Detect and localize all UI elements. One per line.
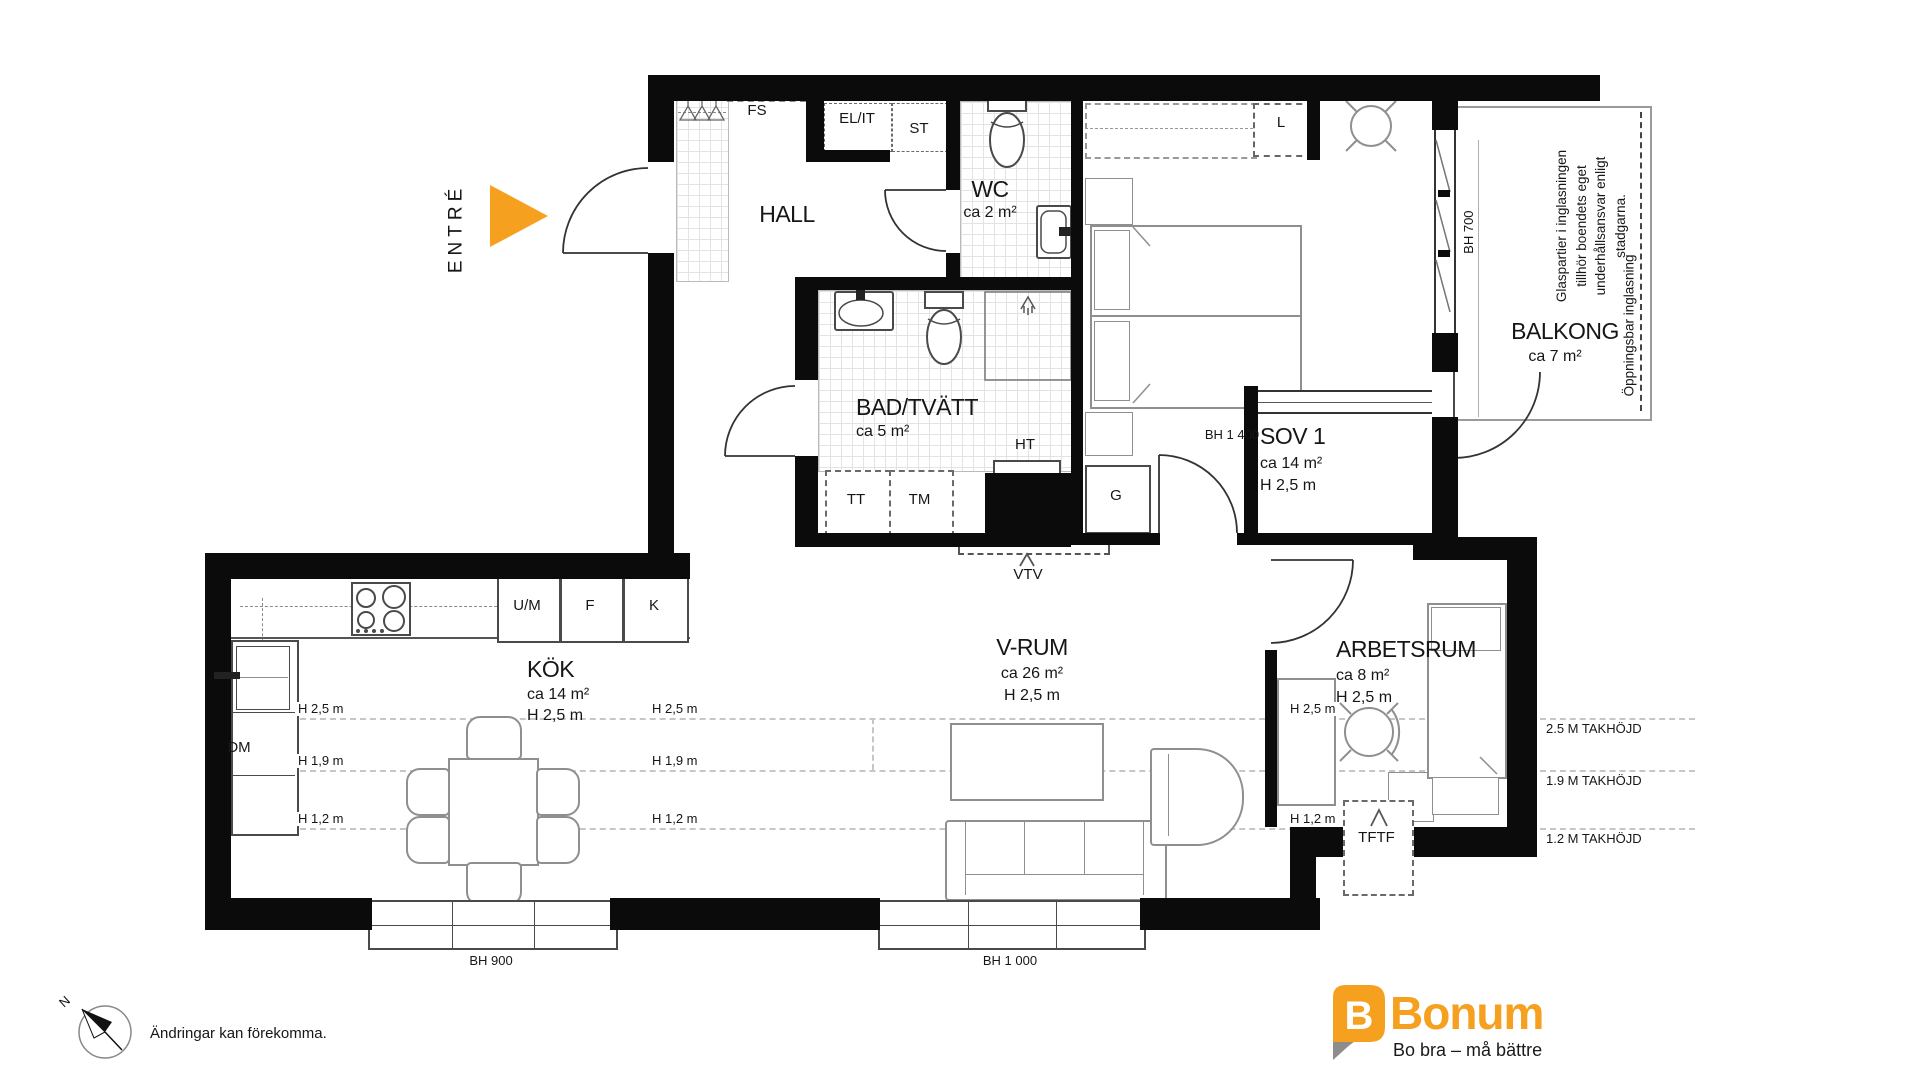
room-label-bad: BAD/TVÄTT (856, 395, 978, 420)
wall (648, 75, 674, 162)
wall (806, 101, 824, 157)
label-tm: TM (889, 492, 950, 509)
wall (795, 277, 1071, 290)
hanger-icons (680, 101, 724, 120)
wall (806, 150, 890, 162)
compass-n-label: N (56, 993, 73, 1010)
room-label-kok: KÖK (527, 657, 574, 682)
ceiling-legend-12: 1.2 M TAKHÖJD (1544, 832, 1644, 846)
brand-tagline: Bo bra – må bättre (1393, 1040, 1542, 1061)
wall (610, 898, 880, 930)
wall (1432, 101, 1458, 130)
room-area-wc: ca 2 m² (952, 204, 1028, 222)
entry-arrow-icon (490, 185, 548, 247)
wall (648, 75, 1600, 101)
toilet-icon (925, 292, 963, 364)
room-label-hall: HALL (727, 202, 847, 227)
label-bh1400: BH 1 400 (1186, 428, 1278, 442)
wall (1290, 827, 1316, 898)
room-label-arbetsrum: ARBETSRUM (1336, 637, 1476, 662)
label-ht: HT (1003, 437, 1047, 454)
room-height-vrum: H 2,5 m (972, 687, 1092, 705)
label-l: L (1253, 115, 1309, 132)
wall (795, 290, 818, 380)
wall (1410, 827, 1537, 857)
floor-plan-canvas: N B ENTRÉ HALL WC ca 2 m² BAD (0, 0, 1920, 1080)
stove-icon (352, 583, 410, 635)
label-tt: TT (825, 492, 887, 509)
label-vtv: VTV (998, 567, 1058, 584)
bonum-logo-letter: B (1345, 994, 1374, 1038)
wall (795, 533, 987, 547)
wall (1083, 533, 1160, 545)
wall (1140, 898, 1320, 930)
height-label: H 1,2 m (650, 812, 700, 826)
label-bh900: BH 900 (431, 954, 551, 968)
room-label-wc: WC (958, 177, 1022, 202)
room-area-vrum: ca 26 m² (972, 665, 1092, 683)
height-label: H 1,9 m (296, 754, 346, 768)
wall (1244, 386, 1258, 545)
compass-icon: N (56, 993, 131, 1058)
room-area-sov1: ca 14 m² (1260, 455, 1322, 473)
room-area-kok: ca 14 m² (527, 686, 589, 704)
entry-label: ENTRÉ (447, 168, 468, 288)
wall (1432, 333, 1458, 372)
room-height-sov1: H 2,5 m (1260, 477, 1316, 495)
wall (1507, 560, 1537, 827)
wall (648, 253, 674, 579)
height-label: H 1,9 m (650, 754, 700, 768)
toilet-icon (988, 95, 1026, 167)
vtv-caret-icon (1020, 554, 1034, 566)
height-label: H 2,5 m (1288, 702, 1338, 716)
label-um: U/M (497, 598, 557, 615)
room-height-kok: H 2,5 m (527, 707, 583, 725)
sink-icon (1037, 206, 1072, 258)
window-mullion (1438, 250, 1450, 257)
chair-icon (1346, 101, 1396, 151)
glazing-note-line: Glaspartier i inglasningen (1552, 116, 1572, 336)
room-area-balkong: ca 7 m² (1500, 348, 1610, 366)
label-bh1000: BH 1 000 (948, 954, 1072, 968)
ventilation-shaft (985, 473, 1071, 547)
label-st: ST (893, 121, 945, 138)
window-bh1000 (878, 900, 1146, 950)
label-f: F (560, 598, 620, 615)
shower-area (985, 292, 1071, 380)
sink-icon (835, 288, 893, 330)
room-height-arbetsrum: H 2,5 m (1336, 689, 1392, 707)
height-label: H 1,2 m (1288, 812, 1338, 826)
kitchen-tap-icon (214, 672, 240, 679)
label-fs: FS (735, 103, 779, 120)
ceiling-legend-25: 2.5 M TAKHÖJD (1544, 722, 1644, 736)
wall (1413, 537, 1537, 560)
label-k: K (623, 598, 685, 615)
brand-name: Bonum (1390, 986, 1543, 1040)
window-mullion (1438, 190, 1450, 197)
wall (1265, 650, 1277, 827)
label-bh700: BH 700 (1462, 192, 1476, 272)
tftf-unit (1343, 800, 1414, 896)
room-area-bad: ca 5 m² (856, 423, 909, 441)
height-label: H 2,5 m (650, 702, 700, 716)
glazing-note-line: underhållsansvar enligt (1591, 116, 1611, 336)
label-el-it: EL/IT (822, 111, 892, 128)
wall (1071, 101, 1083, 545)
bonum-logo-icon: B (1333, 985, 1385, 1060)
label-dm: DM (214, 740, 264, 757)
window-bh900 (368, 900, 618, 950)
height-label: H 1,2 m (296, 812, 346, 826)
glazing-note-line: tillhör boendets eget (1572, 116, 1592, 336)
disclaimer-text: Ändringar kan förekomma. (150, 1026, 327, 1043)
wall (205, 898, 372, 930)
ceiling-legend-19: 1.9 M TAKHÖJD (1544, 774, 1644, 788)
room-area-arbetsrum: ca 8 m² (1336, 667, 1389, 685)
balcony-openable-note: Öppningsbar inglasning (1623, 230, 1638, 420)
desk-chair-icon (1340, 703, 1399, 761)
wall (205, 553, 690, 579)
label-g: G (1085, 488, 1147, 505)
height-label: H 2,5 m (296, 702, 346, 716)
label-tftf: TFTF (1343, 830, 1410, 847)
room-label-vrum: V-RUM (972, 635, 1092, 660)
wall (1237, 533, 1432, 545)
